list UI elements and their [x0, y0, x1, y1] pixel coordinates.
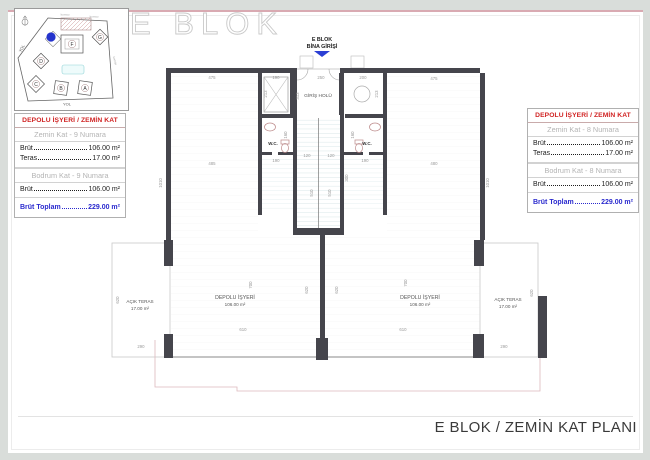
svg-text:G: G — [98, 35, 102, 41]
svg-text:160: 160 — [350, 131, 355, 139]
row-label: Brüt — [20, 144, 33, 155]
block-a: A — [78, 81, 93, 96]
row-label: Brüt — [533, 180, 546, 191]
svg-text:1010: 1010 — [485, 178, 490, 188]
svg-text:475: 475 — [430, 76, 438, 81]
shop-left-area: 106.00 m² — [225, 302, 246, 307]
entry-label-line1: E BLOK — [312, 37, 332, 43]
svg-text:D: D — [39, 59, 43, 65]
bodrum-rows: Brüt 106.00 m² — [528, 178, 638, 194]
drawing-sheet: { "window": { "watermark": "E BLOK" }, "… — [0, 0, 650, 460]
svg-text:700: 700 — [403, 279, 408, 287]
svg-text:120: 120 — [303, 153, 311, 158]
floor-plan: E BLOK BİNA GİRİŞİ GİRİŞ HOLÜ W.C. W.C. … — [100, 28, 560, 418]
svg-text:620: 620 — [304, 286, 309, 294]
area-row: Brüt 106.00 m² — [20, 144, 120, 155]
row-label: Teras — [533, 149, 550, 160]
area-row: Brüt 106.00 m² — [533, 180, 633, 191]
total-row: Brüt Toplam 229.00 m² — [20, 203, 120, 213]
svg-text:290: 290 — [500, 344, 508, 349]
unit8-area-panel: DEPOLU İŞYERİ / ZEMİN KAT Zemin Kat - 8 … — [527, 108, 639, 213]
terrace-right-area: 17.00 m² — [499, 304, 518, 309]
block-g: G — [92, 29, 108, 45]
north-arrow-icon — [22, 16, 28, 26]
total-value: 229.00 m² — [601, 198, 633, 208]
svg-text:190: 190 — [361, 158, 369, 163]
site-plan: F G D C B A — [15, 9, 126, 108]
road-label-bottom: YOL — [63, 102, 72, 107]
shaft-circle — [354, 86, 370, 102]
row-value: 106.00 m² — [88, 185, 120, 196]
hall-label: GİRİŞ HOLÜ — [304, 92, 332, 99]
row-label: Brüt — [533, 139, 546, 150]
leader-dots — [34, 190, 88, 191]
svg-text:160: 160 — [283, 131, 288, 139]
floor-plan-area: E BLOK BİNA GİRİŞİ GİRİŞ HOLÜ W.C. W.C. … — [100, 28, 560, 423]
svg-text:510: 510 — [327, 189, 332, 197]
row-label: Teras — [20, 154, 37, 165]
pool — [62, 65, 84, 74]
svg-text:1010: 1010 — [158, 178, 163, 188]
total-label: Brüt Toplam — [20, 203, 61, 213]
svg-text:C: C — [34, 82, 38, 88]
floor-title-zemin: Zemin Kat - 8 Numara — [528, 123, 638, 137]
shop-right-name: DEPOLU İŞYERİ — [400, 294, 440, 301]
svg-text:120: 120 — [327, 153, 335, 158]
leader-dots — [34, 149, 88, 150]
svg-text:620: 620 — [529, 289, 534, 297]
leader-dots — [575, 203, 600, 204]
road-label-left: YOL — [18, 43, 27, 53]
area-row: Teras 17.00 m² — [533, 149, 633, 160]
floor-title-zemin: Zemin Kat - 9 Numara — [15, 128, 125, 142]
svg-text:700: 700 — [248, 281, 253, 289]
block-e-highlight — [45, 31, 61, 47]
total-label: Brüt Toplam — [533, 198, 574, 208]
svg-text:485: 485 — [208, 161, 216, 166]
total-value: 229.00 m² — [88, 203, 120, 213]
total-row: Brüt Toplam 229.00 m² — [533, 198, 633, 208]
svg-text:250: 250 — [317, 75, 325, 80]
svg-text:300: 300 — [344, 174, 349, 182]
svg-text:190: 190 — [272, 75, 280, 80]
unit9-area-panel: DEPOLU İŞYERİ / ZEMİN KAT Zemin Kat - 9 … — [14, 113, 126, 218]
bodrum-rows: Brüt 106.00 m² — [15, 183, 125, 199]
svg-text:213: 213 — [263, 90, 268, 98]
leader-dots — [62, 208, 87, 209]
shop-right-area: 106.00 m² — [410, 302, 431, 307]
entry-label-line2: BİNA GİRİŞİ — [307, 43, 338, 50]
row-value: 106.00 m² — [88, 144, 120, 155]
leader-dots — [551, 154, 604, 155]
site-plan-box: F G D C B A — [14, 8, 129, 111]
block-d: D — [33, 53, 49, 69]
row-value: 17.00 m² — [605, 149, 633, 160]
svg-text:610: 610 — [399, 327, 407, 332]
neighbor-label-3: komşu — [112, 56, 118, 66]
sheet-title: E BLOK / ZEMİN KAT PLANI — [435, 419, 637, 436]
svg-text:620: 620 — [334, 286, 339, 294]
svg-text:190: 190 — [272, 158, 280, 163]
neighbor-label-1: komşu — [61, 13, 70, 17]
staircase — [262, 118, 383, 228]
svg-text:290: 290 — [137, 344, 145, 349]
floor-title-bodrum: Bodrum Kat - 8 Numara — [528, 163, 638, 178]
leader-dots — [547, 185, 601, 186]
svg-text:213: 213 — [374, 90, 379, 98]
svg-text:313: 313 — [295, 92, 300, 100]
svg-text:F: F — [70, 42, 73, 48]
entry-arrow-icon — [314, 51, 330, 57]
svg-text:475: 475 — [208, 75, 216, 80]
current-block-dot — [46, 32, 55, 41]
block-b: B — [54, 81, 69, 96]
roof-shaft-marks — [300, 56, 364, 68]
block-c: C — [28, 76, 45, 93]
wc-left-label: W.C. — [268, 141, 278, 146]
hatched-building — [61, 18, 91, 30]
area-row: Brüt 106.00 m² — [533, 139, 633, 150]
row-label: Brüt — [20, 185, 33, 196]
zemin-rows: Brüt 106.00 m² Teras 17.00 m² — [15, 142, 125, 168]
row-value: 17.00 m² — [92, 154, 120, 165]
svg-text:610: 610 — [239, 327, 247, 332]
svg-text:480: 480 — [430, 161, 438, 166]
row-value: 106.00 m² — [601, 139, 633, 150]
terrace-left-name: AÇIK TERAS — [126, 299, 153, 304]
terrace-left-area: 17.00 m² — [131, 306, 150, 311]
svg-text:200: 200 — [359, 75, 367, 80]
area-row: Teras 17.00 m² — [20, 154, 120, 165]
panel-header: DEPOLU İŞYERİ / ZEMİN KAT — [15, 114, 125, 128]
terrace-right-name: AÇIK TERAS — [494, 297, 521, 302]
floor-title-bodrum: Bodrum Kat - 9 Numara — [15, 168, 125, 183]
panel-header: DEPOLU İŞYERİ / ZEMİN KAT — [528, 109, 638, 123]
svg-text:620: 620 — [115, 296, 120, 304]
svg-text:510: 510 — [309, 189, 314, 197]
leader-dots — [547, 144, 601, 145]
zemin-rows: Brüt 106.00 m² Teras 17.00 m² — [528, 137, 638, 163]
shop-left-name: DEPOLU İŞYERİ — [215, 294, 255, 301]
area-row: Brüt 106.00 m² — [20, 185, 120, 196]
leader-dots — [38, 159, 91, 160]
wc-right-label: W.C. — [362, 141, 372, 146]
neighbor-label-2: komşu — [90, 15, 99, 19]
block-f: F — [61, 35, 83, 53]
row-value: 106.00 m² — [601, 180, 633, 191]
